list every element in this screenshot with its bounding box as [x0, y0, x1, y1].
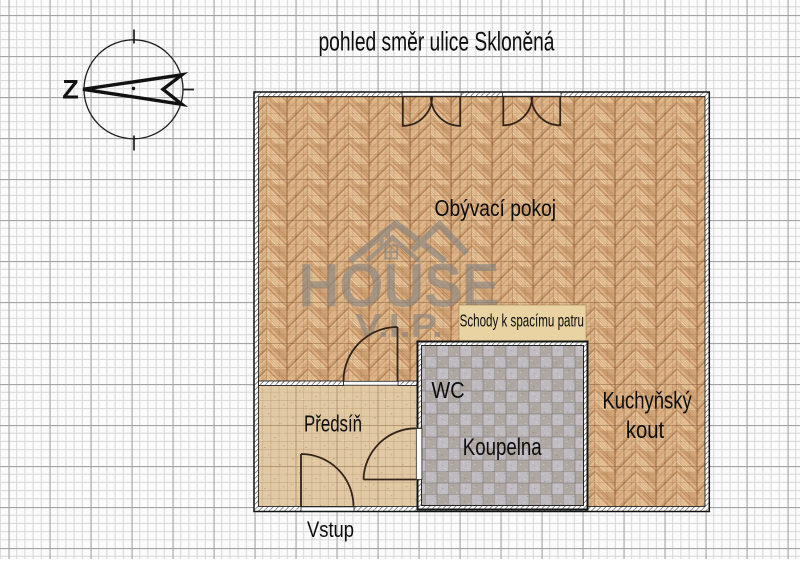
svg-text:Vstup: Vstup [307, 517, 354, 542]
svg-text:Předsíň: Předsíň [304, 411, 362, 437]
svg-text:Obývací pokoj: Obývací pokoj [435, 195, 557, 221]
svg-text:V.I.P.: V.I.P. [355, 307, 443, 344]
svg-text:kout: kout [626, 417, 664, 444]
svg-text:Schody k spacímu patru: Schody k spacímu patru [460, 311, 584, 331]
svg-text:WC: WC [431, 377, 464, 403]
svg-text:pohled směr ulice Skloněná: pohled směr ulice Skloněná [319, 27, 555, 57]
svg-text:Koupelna: Koupelna [463, 434, 542, 461]
svg-text:Kuchyňský: Kuchyňský [602, 388, 691, 415]
svg-text:Z: Z [62, 75, 78, 105]
